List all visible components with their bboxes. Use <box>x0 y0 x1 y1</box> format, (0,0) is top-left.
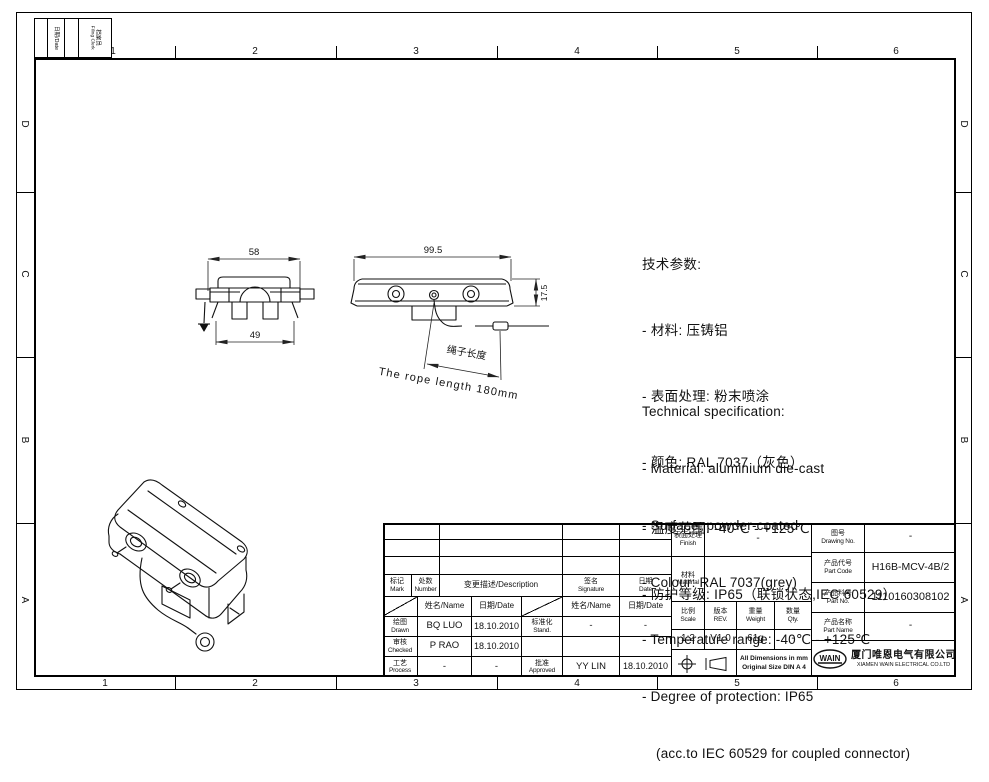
tb-drawn-name: BQ LUO <box>418 617 472 637</box>
tb-rev-empty <box>563 557 620 575</box>
zone-label-top-5: 5 <box>727 45 747 57</box>
tb-finish-label: 表面处理 Finish <box>672 523 705 557</box>
tech-notes-en-item: - Material: aluminium die-cast <box>642 459 910 478</box>
tech-notes-en-item: - Degree of protection: IP65 <box>642 687 910 706</box>
tb-rev-header: 版本 REV. <box>705 602 737 630</box>
tb-number-en: Number <box>415 586 437 593</box>
filing-clerk-label: 档案员 Filing Clerk <box>89 26 100 50</box>
company-name-cn: 厦门唯恩电气有限公司 <box>851 650 956 662</box>
tb-diagonal-cell <box>522 597 563 617</box>
iso-body-outline <box>108 480 247 651</box>
tb-part-no-cn: 产品料号 <box>824 590 852 598</box>
tb-signature-cn: 签名 <box>584 578 598 586</box>
tb-description-header: 变更描述/Description <box>440 575 563 597</box>
tb-scale-header: 比例 Scale <box>672 602 705 630</box>
tb-rev-empty <box>440 523 563 540</box>
tb-weight-en: Weight <box>746 616 765 623</box>
filing-clerk-cell: 档案员 Filing Clerk <box>79 19 111 57</box>
zone-label-left-B: B <box>18 433 32 447</box>
tb-signature-en: Signature <box>578 586 604 593</box>
front-dim-58 <box>208 259 300 291</box>
tb-rev-cn: 版本 <box>714 608 728 616</box>
tb-drawn-date: 18.10.2010 <box>472 617 522 637</box>
title-block: 标记 Mark 处数 Number 变更描述/Description 签名 Si… <box>383 523 956 677</box>
front-dim-58-text: 58 <box>249 247 260 258</box>
tb-checked-cn: 审核 <box>393 639 407 647</box>
zone-tick <box>16 523 34 524</box>
tb-rev-empty <box>620 540 672 557</box>
tb-material-en: Material <box>677 579 699 586</box>
tb-drawn-en: Drawn <box>391 627 409 634</box>
tb-qty-cn: 数量 <box>786 608 800 616</box>
tb-rev-empty <box>383 557 440 575</box>
tb-rev-value: V1.0 <box>705 630 737 650</box>
filing-date-label: 日期/Date <box>53 26 59 50</box>
tb-rev-empty <box>440 557 563 575</box>
tb-stand-en: Stand. <box>533 627 551 634</box>
tb-scale-en: Scale <box>680 616 695 623</box>
tb-weight-header: 重量 Weight <box>737 602 775 630</box>
tb-mark-en: Mark <box>390 586 404 593</box>
tb-name-subheader-label: 姓名/Name <box>425 602 465 611</box>
zone-tick <box>954 357 972 358</box>
tb-part-name-en: Part Name <box>823 627 852 634</box>
tech-notes-en-title: Technical specification: <box>642 402 910 421</box>
tb-material-value: - <box>705 557 812 602</box>
zone-tick <box>817 46 818 58</box>
zone-label-right-B: B <box>957 433 971 447</box>
tb-signature-header: 签名 Signature <box>563 575 620 597</box>
tb-date2-subheader: 日期/Date <box>620 597 672 617</box>
zone-label-bottom-4: 4 <box>567 677 587 689</box>
tech-notes-cn-item: - 材料: 压铸铝 <box>642 320 896 342</box>
filing-clerk-en: Filing Clerk <box>89 26 94 50</box>
tb-date-subheader-label: 日期/Date <box>479 602 514 611</box>
tb-process-en: Process <box>389 667 411 674</box>
zone-label-left-C: C <box>18 267 32 281</box>
zone-label-bottom-3: 3 <box>406 677 426 689</box>
tb-approved-name: YY LIN <box>563 657 620 677</box>
tb-rev-empty <box>383 540 440 557</box>
tb-finish-cn: 表面处理 <box>674 532 702 540</box>
tb-approved-date: 18.10.2010 <box>620 657 672 677</box>
zone-label-top-6: 6 <box>886 45 906 57</box>
zone-tick <box>16 192 34 193</box>
tb-dims-note-line2: Original Size DIN A 4 <box>742 664 806 672</box>
tb-date-subheader: 日期/Date <box>472 597 522 617</box>
side-dim-99_5 <box>354 257 511 281</box>
tb-number-header: 处数 Number <box>412 575 440 597</box>
tb-rev-empty <box>383 523 440 540</box>
filing-cell-empty <box>35 19 48 57</box>
tb-number-cn: 处数 <box>419 578 433 586</box>
isometric-view <box>78 458 323 683</box>
tb-part-code-cn: 产品代号 <box>824 560 852 568</box>
zone-tick <box>954 523 972 524</box>
tb-mark-cn: 标记 <box>390 578 404 586</box>
tb-process-cn: 工艺 <box>393 660 407 668</box>
tb-process-date: - <box>472 657 522 677</box>
tb-stand-name: - <box>563 617 620 637</box>
tb-company-cell: WAIN 厦门唯恩电气有限公司 XIAMEN WAIN ELECTRICAL C… <box>812 641 956 677</box>
filing-clerk-cn: 档案员 <box>95 26 101 50</box>
tb-date-en: Date <box>639 586 652 593</box>
tb-material-label: 材料 Material <box>672 557 705 602</box>
tb-qty-value: - <box>775 630 812 650</box>
tb-approved-en: Approved <box>529 667 555 674</box>
tb-rev-empty <box>563 540 620 557</box>
front-body-outline <box>196 277 314 331</box>
tb-name2-subheader-label: 姓名/Name <box>571 602 611 611</box>
tb-finish-en: Finish <box>680 540 696 547</box>
tb-drawing-no-cn: 图号 <box>831 530 845 538</box>
tb-weight-cn: 重量 <box>749 608 763 616</box>
tb-empty-cell <box>620 637 672 657</box>
tb-part-no-label: 产品料号 Part No. <box>812 583 865 613</box>
tb-approved-label: 批准 Approved <box>522 657 563 677</box>
tech-notes-en-item: (acc.to IEC 60529 for coupled connector) <box>642 744 910 763</box>
tb-scale-cn: 比例 <box>681 608 695 616</box>
zone-label-top-4: 4 <box>567 45 587 57</box>
tb-empty-cell <box>522 637 563 657</box>
tb-scale-value: 1:2 <box>672 630 705 650</box>
tb-process-name: - <box>418 657 472 677</box>
zone-label-left-A: A <box>18 593 32 607</box>
tb-rev-empty <box>440 540 563 557</box>
zone-tick <box>954 192 972 193</box>
tb-stand-label: 标准化 Stand. <box>522 617 563 637</box>
front-view: 58 49 <box>185 245 357 373</box>
tb-checked-en: Checked <box>388 647 412 654</box>
tb-checked-label: 审核 Checked <box>383 637 418 657</box>
zone-tick <box>336 46 337 58</box>
zone-label-right-A: A <box>957 593 971 607</box>
zone-label-right-C: C <box>957 267 971 281</box>
zone-label-left-D: D <box>18 117 32 131</box>
zone-tick <box>336 677 337 689</box>
side-rope-label-cn: 绳子长度 <box>446 343 488 363</box>
zone-tick <box>16 357 34 358</box>
tb-qty-en: Qty. <box>788 616 799 623</box>
tb-drawing-no-value: - <box>865 523 956 553</box>
zone-tick <box>657 46 658 58</box>
zone-tick <box>175 46 176 58</box>
front-dim-49-text: 49 <box>250 330 261 341</box>
tb-drawn-label: 绘图 Drawn <box>383 617 418 637</box>
side-body-outline <box>351 279 549 330</box>
tb-qty-header: 数量 Qty. <box>775 602 812 630</box>
wain-logo-text: WAIN <box>820 654 841 663</box>
side-dim-17_5 <box>512 279 540 306</box>
filing-cell-empty <box>65 19 79 57</box>
tb-rev-empty <box>620 523 672 540</box>
tb-projection-symbols <box>672 650 737 677</box>
tb-approved-cn: 批准 <box>535 660 549 668</box>
tb-name-subheader: 姓名/Name <box>418 597 472 617</box>
tb-weight-value: 61g <box>737 630 775 650</box>
tb-mark-header: 标记 Mark <box>383 575 412 597</box>
tb-part-no-en: Part No. <box>827 598 849 605</box>
tb-part-name-value: - <box>865 613 956 641</box>
filing-corner-block: 日期/Date 档案员 Filing Clerk <box>34 18 112 58</box>
tb-date-cn: 日期 <box>639 578 653 586</box>
tb-dims-note-line1: All Dimensions in mm <box>740 655 808 663</box>
tb-date-header: 日期 Date <box>620 575 672 597</box>
zone-tick <box>497 677 498 689</box>
zone-label-top-2: 2 <box>245 45 265 57</box>
filing-date-cell: 日期/Date <box>48 19 65 57</box>
wain-logo-icon: WAIN <box>812 647 848 671</box>
tb-part-code-value: H16B-MCV-4B/2 <box>865 553 956 583</box>
side-dim-17_5-text: 17.5 <box>539 284 549 301</box>
tb-drawing-no-label: 图号 Drawing No. <box>812 523 865 553</box>
side-dim-99_5-text: 99.5 <box>424 245 443 256</box>
tb-part-code-label: 产品代号 Part Code <box>812 553 865 583</box>
tb-description-label: 变更描述/Description <box>464 581 538 590</box>
zone-label-top-3: 3 <box>406 45 426 57</box>
tb-dims-note: All Dimensions in mm Original Size DIN A… <box>737 650 812 677</box>
drawing-sheet: { "sheet": { "col_labels": ["1","2","3",… <box>0 0 989 700</box>
tb-stand-date: - <box>620 617 672 637</box>
tb-drawing-no-en: Drawing No. <box>821 538 855 545</box>
tb-rev-en: REV. <box>714 616 728 623</box>
tb-part-code-en: Part Code <box>824 568 851 575</box>
tb-checked-name: P RAO <box>418 637 472 657</box>
tb-empty-cell <box>563 637 620 657</box>
company-name-en: XIAMEN WAIN ELECTRICAL CO.LTD <box>857 662 950 668</box>
tb-part-name-label: 产品名称 Part Name <box>812 613 865 641</box>
tb-part-name-cn: 产品名称 <box>824 619 852 627</box>
tb-date2-subheader-label: 日期/Date <box>628 602 663 611</box>
side-rope-dim <box>424 303 501 380</box>
zone-label-right-D: D <box>957 117 971 131</box>
tb-diagonal-cell <box>383 597 418 617</box>
tb-stand-cn: 标准化 <box>532 619 553 627</box>
projection-symbol-icon <box>675 654 733 674</box>
tb-process-label: 工艺 Process <box>383 657 418 677</box>
tb-name2-subheader: 姓名/Name <box>563 597 620 617</box>
tech-notes-cn-title: 技术参数: <box>642 254 896 276</box>
tb-material-cn: 材料 <box>681 572 695 580</box>
zone-tick <box>497 46 498 58</box>
tb-drawn-cn: 绘图 <box>393 619 407 627</box>
tb-rev-empty <box>563 523 620 540</box>
tb-checked-date: 18.10.2010 <box>472 637 522 657</box>
side-view: 99.5 17.5 绳子长度 The rope length 180mm <box>348 243 568 455</box>
tb-finish-value: - <box>705 523 812 557</box>
company-names: 厦门唯恩电气有限公司 XIAMEN WAIN ELECTRICAL CO.LTD <box>851 650 956 668</box>
side-rope-label-en: The rope length 180mm <box>378 366 520 402</box>
tb-part-no-value: 1110160308102 <box>865 583 956 613</box>
tb-rev-empty <box>620 557 672 575</box>
